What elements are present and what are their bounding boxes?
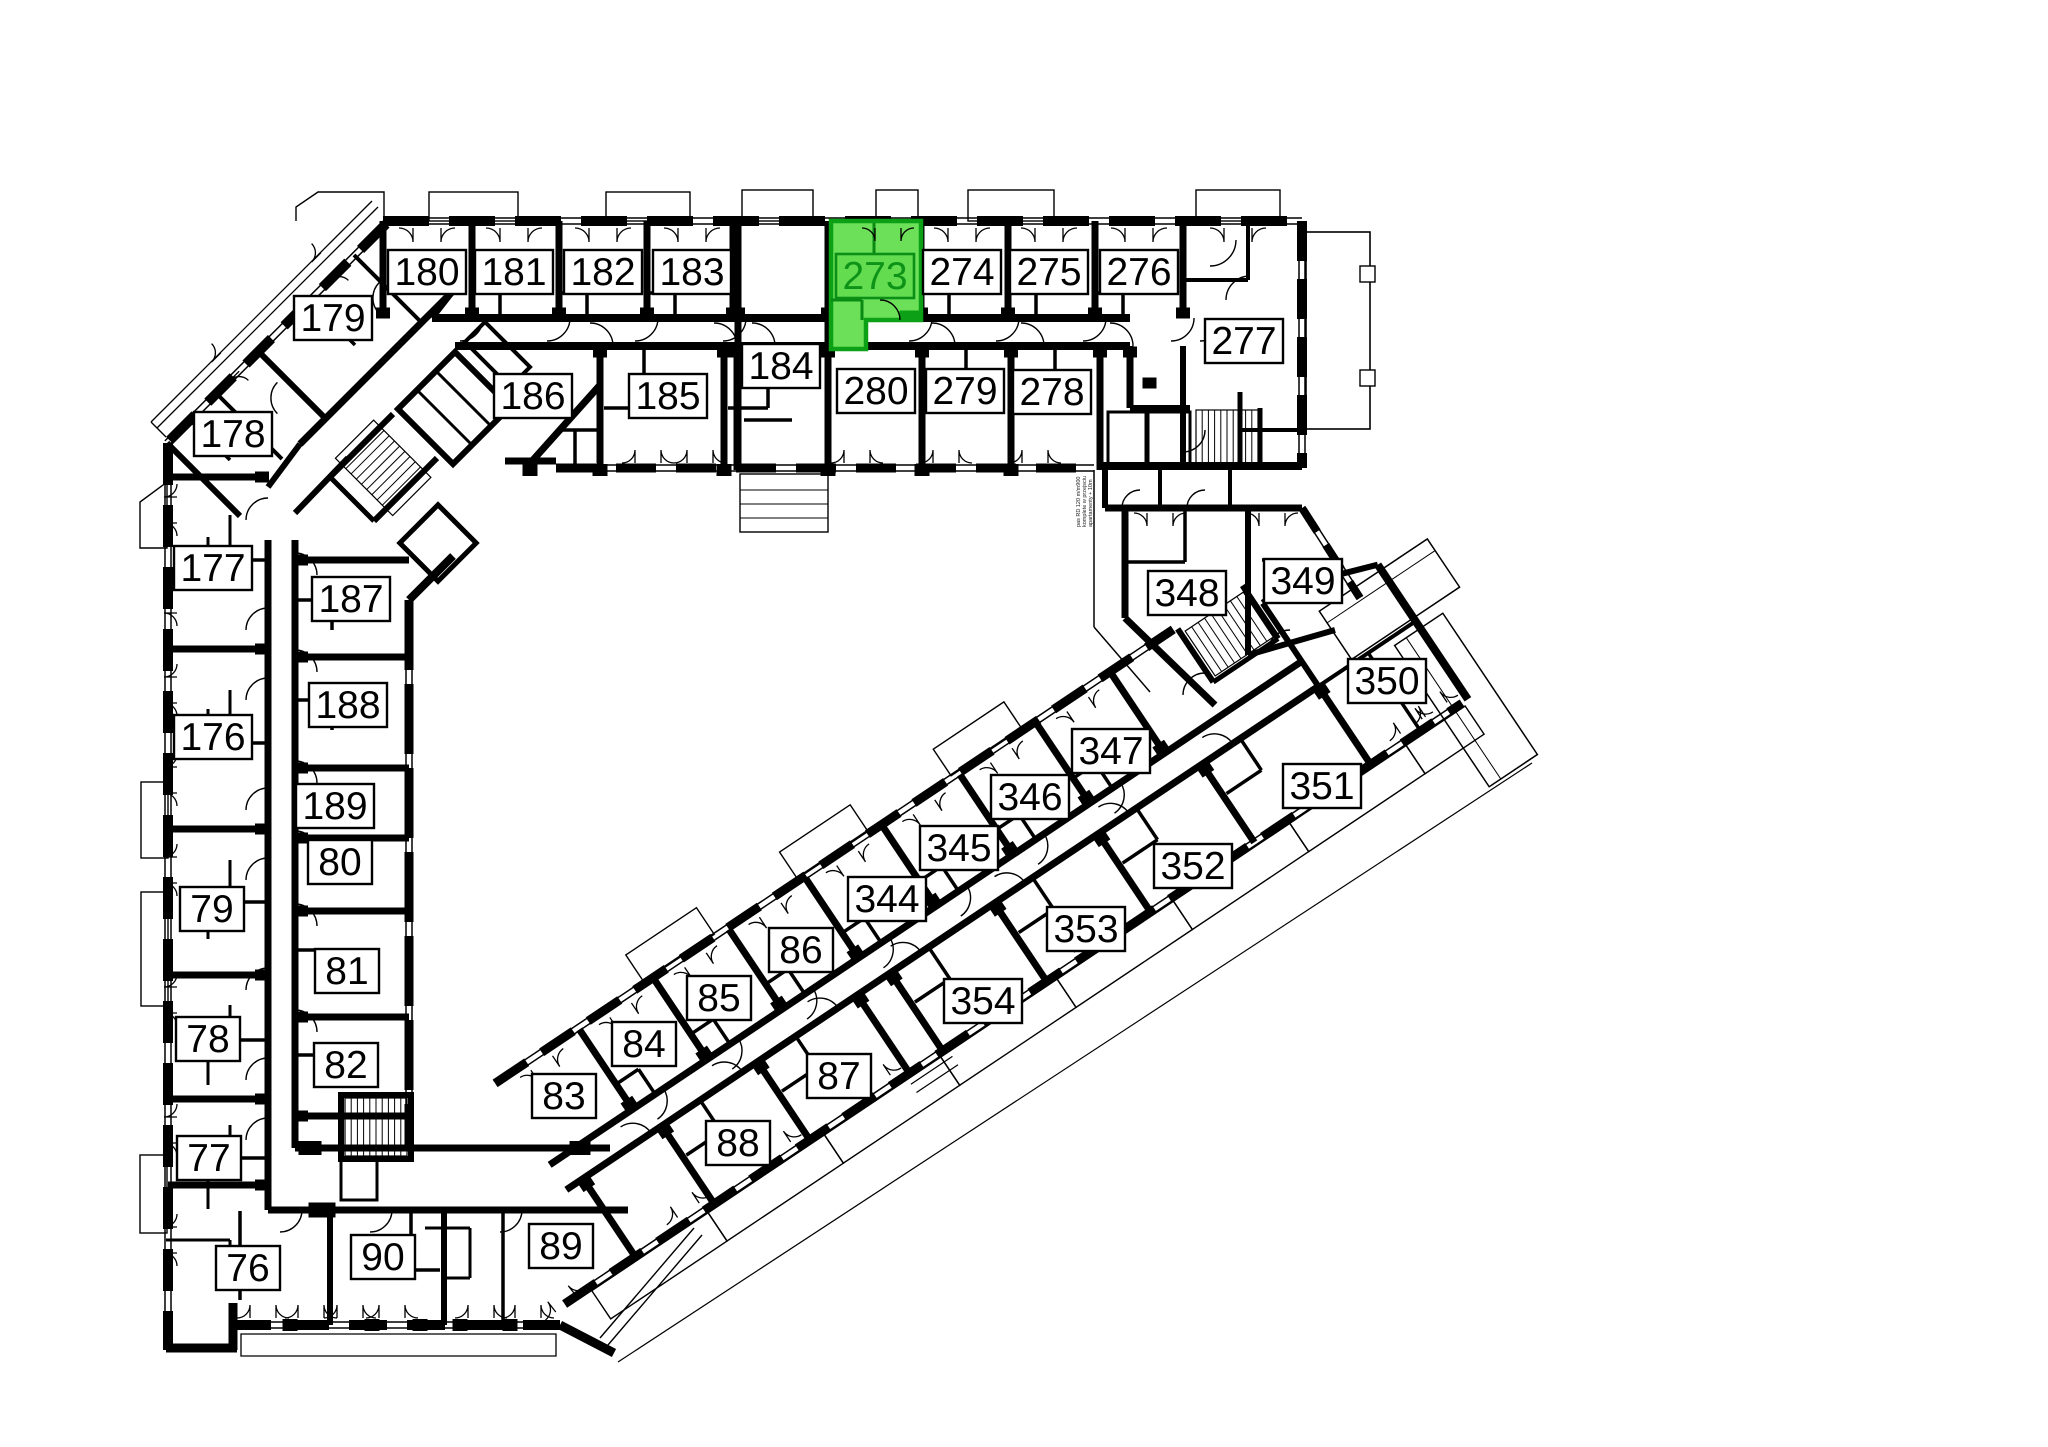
svg-text:278: 278 — [1019, 371, 1084, 414]
svg-text:78: 78 — [186, 1018, 229, 1061]
svg-text:353: 353 — [1053, 908, 1118, 951]
svg-text:177: 177 — [180, 547, 245, 590]
svg-text:88: 88 — [716, 1122, 759, 1165]
svg-text:178: 178 — [200, 413, 265, 456]
svg-text:189: 189 — [302, 785, 367, 828]
svg-text:350: 350 — [1354, 660, 1419, 703]
svg-text:90: 90 — [361, 1236, 404, 1279]
svg-text:188: 188 — [315, 684, 380, 727]
svg-text:354: 354 — [950, 980, 1015, 1023]
svg-text:348: 348 — [1154, 572, 1219, 615]
svg-text:280: 280 — [843, 370, 908, 413]
svg-text:351: 351 — [1289, 765, 1354, 808]
svg-text:273: 273 — [842, 255, 907, 298]
svg-text:276: 276 — [1106, 251, 1171, 294]
svg-text:274: 274 — [929, 251, 994, 294]
svg-text:183: 183 — [659, 251, 724, 294]
svg-text:277: 277 — [1211, 320, 1276, 363]
svg-text:347: 347 — [1078, 730, 1143, 773]
svg-text:344: 344 — [854, 878, 919, 921]
svg-text:186: 186 — [500, 375, 565, 418]
svg-text:86: 86 — [779, 929, 822, 972]
svg-text:182: 182 — [570, 251, 635, 294]
svg-text:77: 77 — [187, 1137, 230, 1180]
svg-text:179: 179 — [300, 297, 365, 340]
svg-text:80: 80 — [318, 841, 361, 884]
svg-text:187: 187 — [318, 578, 383, 621]
svg-text:176: 176 — [180, 716, 245, 759]
svg-text:apartamenty + 10m: apartamenty + 10m — [1088, 479, 1094, 527]
svg-text:275: 275 — [1016, 251, 1081, 294]
svg-text:346: 346 — [997, 776, 1062, 819]
svg-text:89: 89 — [539, 1225, 582, 1268]
svg-text:349: 349 — [1270, 560, 1335, 603]
svg-text:84: 84 — [622, 1023, 665, 1066]
svg-text:83: 83 — [542, 1075, 585, 1118]
svg-text:185: 185 — [635, 375, 700, 418]
svg-text:85: 85 — [697, 977, 740, 1020]
svg-text:352: 352 — [1160, 845, 1225, 888]
svg-text:79: 79 — [190, 888, 233, 931]
svg-text:181: 181 — [481, 251, 546, 294]
svg-text:82: 82 — [324, 1044, 367, 1087]
svg-text:184: 184 — [748, 345, 813, 388]
svg-text:279: 279 — [932, 370, 997, 413]
svg-text:81: 81 — [325, 950, 368, 993]
svg-text:180: 180 — [394, 251, 459, 294]
svg-text:345: 345 — [926, 827, 991, 870]
svg-text:87: 87 — [817, 1055, 860, 1098]
svg-text:76: 76 — [226, 1247, 269, 1290]
